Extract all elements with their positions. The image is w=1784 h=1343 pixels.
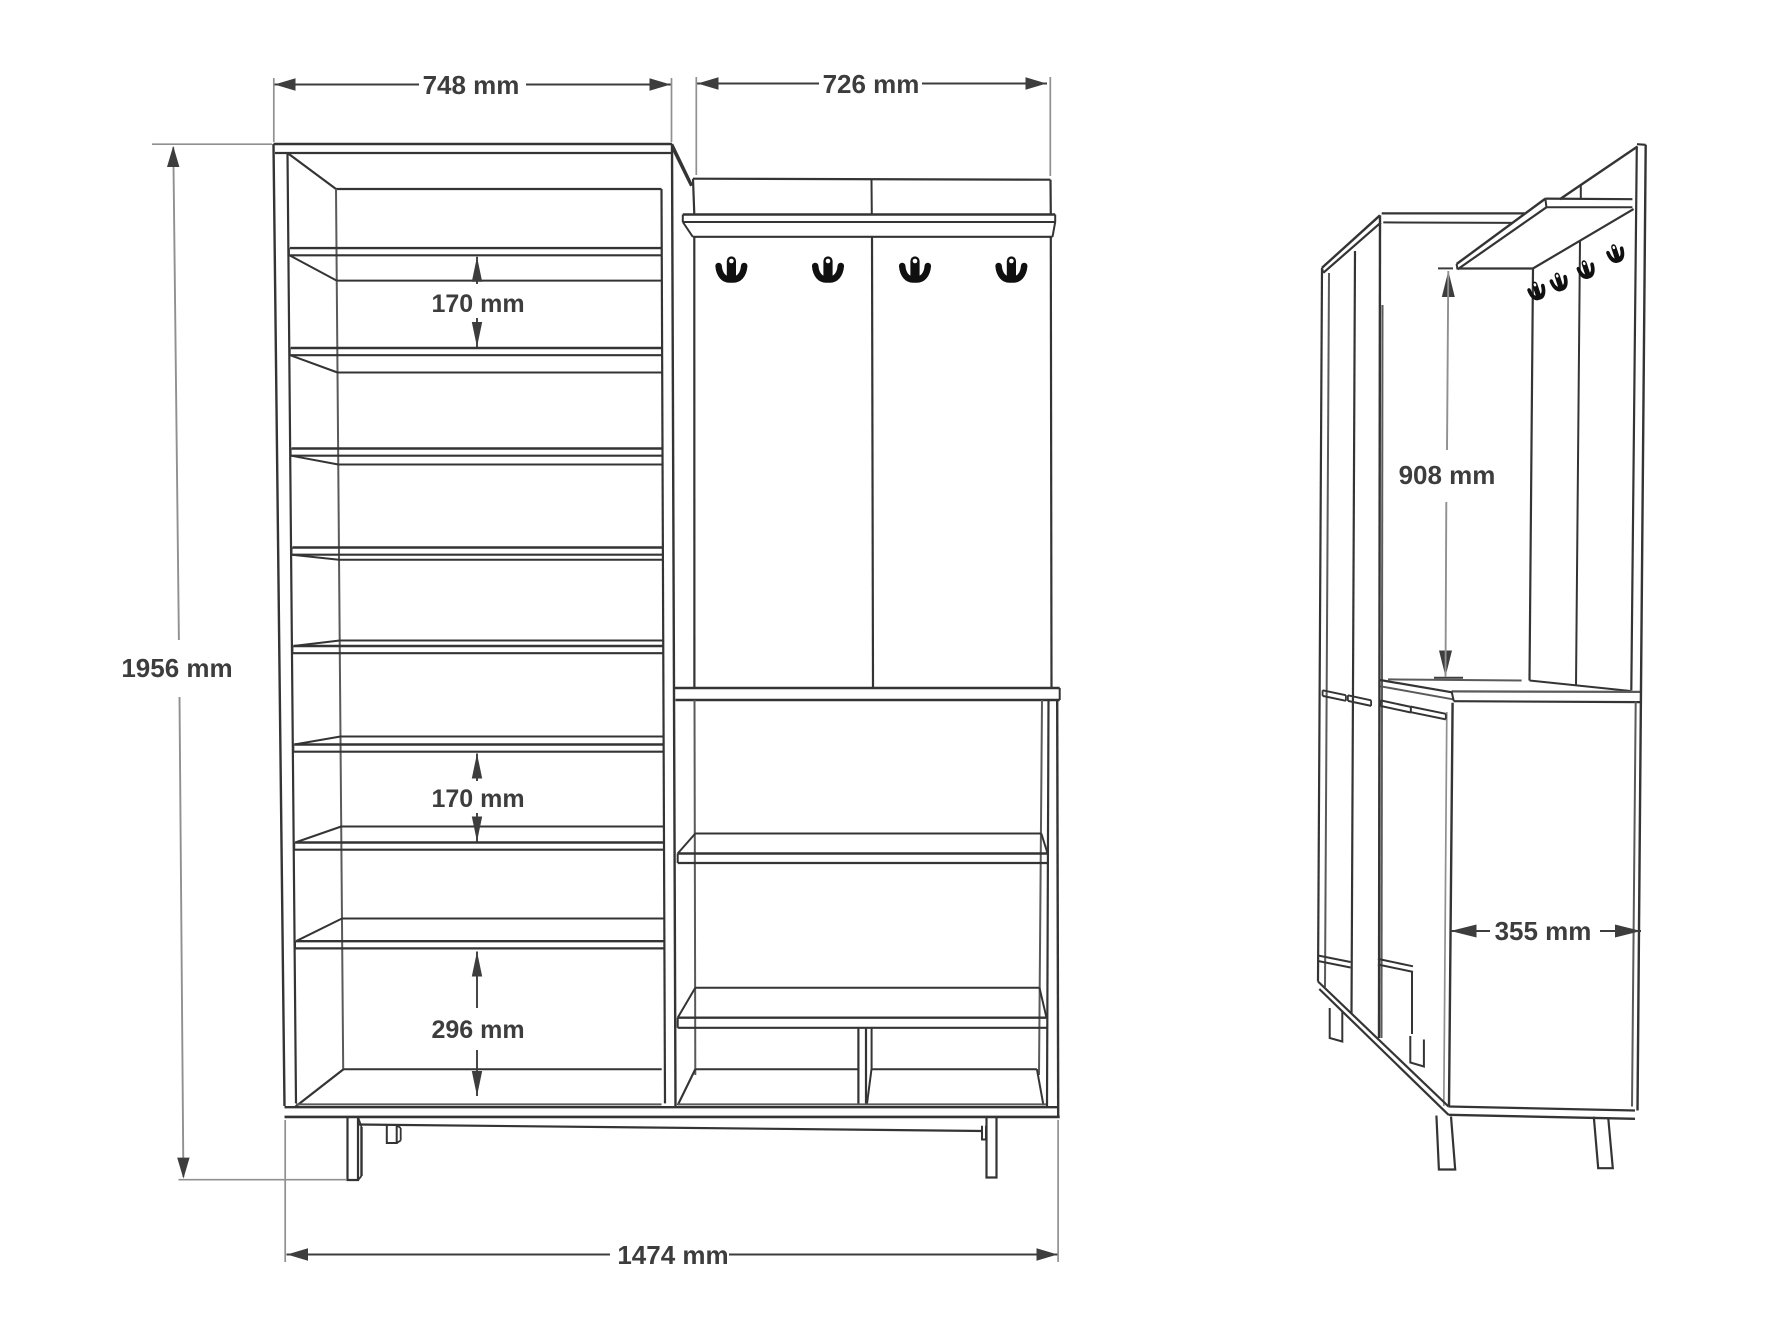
svg-text:170 mm: 170 mm [431, 785, 524, 813]
svg-text:908 mm: 908 mm [1399, 460, 1496, 490]
svg-text:1474 mm: 1474 mm [617, 1240, 728, 1270]
svg-text:726 mm: 726 mm [823, 69, 920, 99]
svg-text:296 mm: 296 mm [431, 1016, 524, 1044]
svg-text:1956 mm: 1956 mm [121, 653, 232, 683]
svg-text:170 mm: 170 mm [431, 290, 524, 318]
svg-text:748 mm: 748 mm [423, 70, 520, 100]
svg-text:355 mm: 355 mm [1495, 916, 1592, 946]
